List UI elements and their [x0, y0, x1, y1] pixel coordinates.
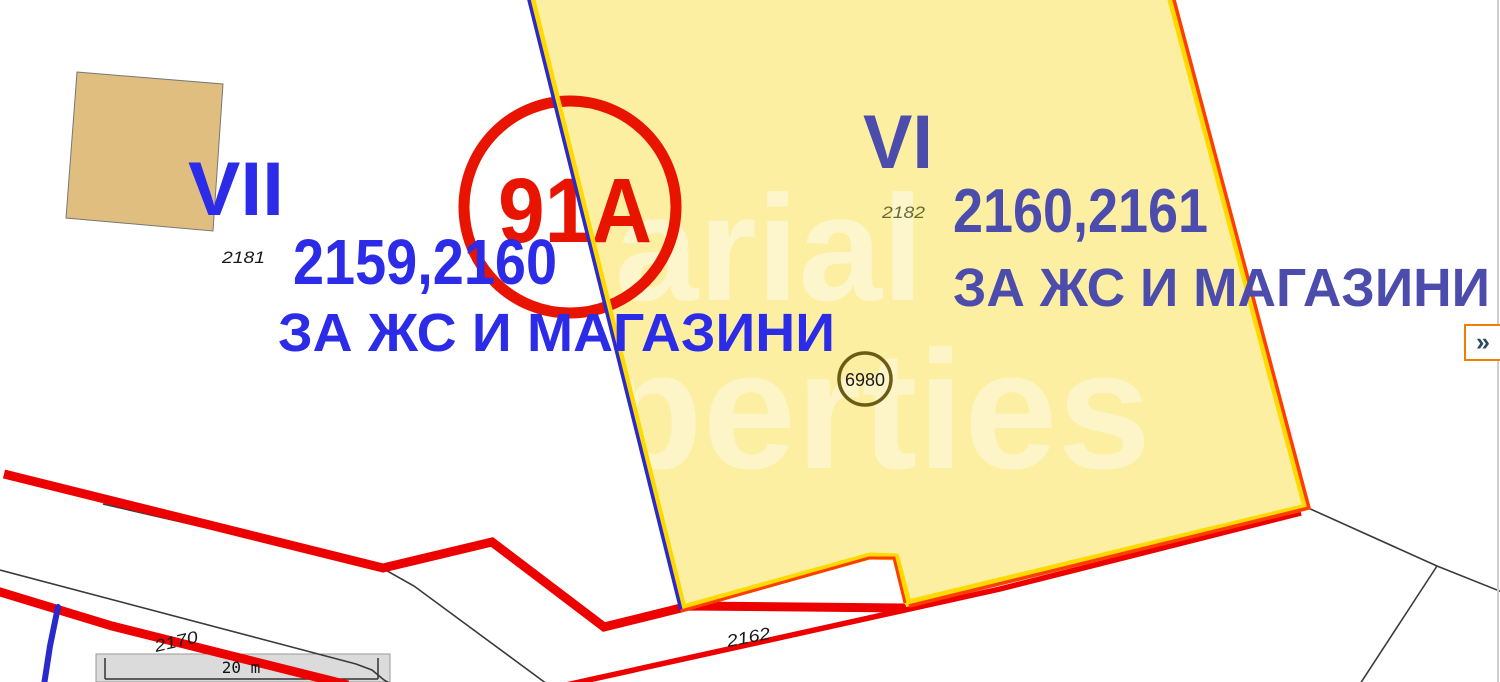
- parcel-vi-roman: VI: [863, 100, 933, 185]
- parcel-vi-numbers: 2160,2161: [953, 177, 1208, 246]
- parcel-vii-cad-number: 2181: [221, 248, 265, 267]
- map-viewer: arial perties 91А 6980 VII 2181 2159,216…: [0, 0, 1500, 682]
- expand-panel-button[interactable]: »: [1464, 324, 1500, 361]
- parcel-vii-roman: VII: [188, 147, 284, 232]
- boundary-line: [1360, 566, 1437, 682]
- scale-bar-label: 20 m: [222, 658, 261, 677]
- parcel-vi-designation: ЗА ЖС И МАГАЗИНИ: [953, 258, 1490, 318]
- road-cad-number: 2170: [151, 627, 200, 656]
- parcel-vii-numbers: 2159,2160: [293, 226, 557, 298]
- parcel-vi-cad-number: 2182: [881, 203, 926, 222]
- parcel-vii-designation: ЗА ЖС И МАГАЗИНИ: [278, 303, 835, 363]
- survey-point-label: 6980: [845, 370, 885, 390]
- chevron-right-icon: »: [1476, 328, 1490, 357]
- boundary-line: [1306, 507, 1500, 592]
- cadastral-map[interactable]: arial perties 91А 6980 VII 2181 2159,216…: [0, 0, 1500, 682]
- blue-regulation-line: [44, 607, 58, 682]
- road-cad-number: 2162: [724, 624, 773, 651]
